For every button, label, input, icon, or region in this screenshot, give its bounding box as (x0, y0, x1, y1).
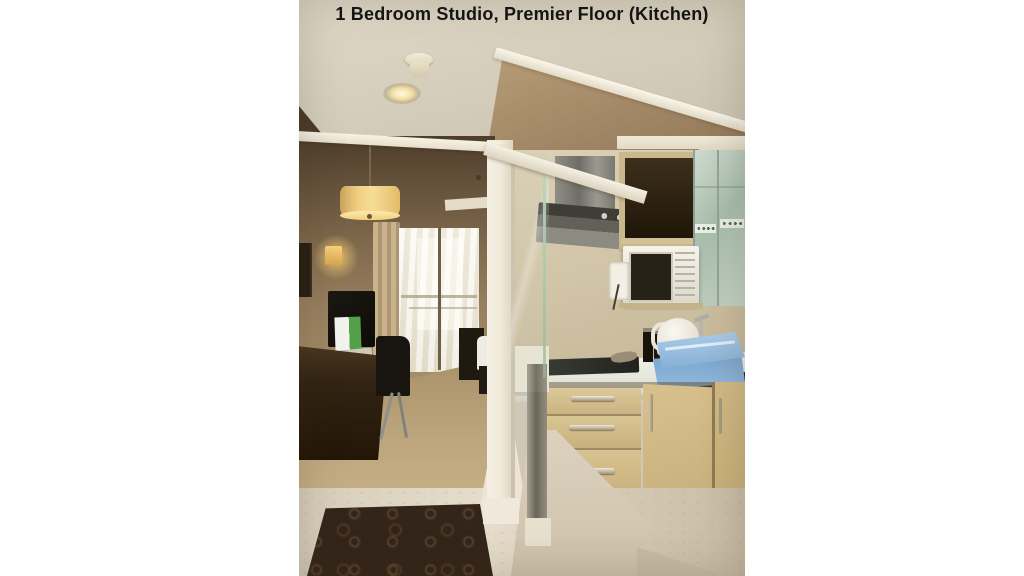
microwave-door (629, 252, 673, 302)
apartment-photo: 1 Bedroom Studio, Premier Floor (Kitchen… (299, 0, 745, 576)
cabinet-panel-line (695, 186, 745, 188)
area-rug (307, 504, 493, 576)
glass-partition-edge (543, 158, 546, 378)
desk-chair (376, 336, 410, 396)
partition-post-base (525, 518, 551, 546)
drawer-handle (571, 396, 615, 401)
cabinet-handle-strip (695, 224, 716, 233)
cabinet-divider (717, 150, 719, 306)
wall-dot (476, 175, 481, 180)
balcony-rail-lower (409, 307, 477, 309)
door-frame (487, 140, 513, 512)
microwave-control-panel (675, 252, 695, 300)
wall-sconce (325, 246, 342, 265)
door-handle (719, 398, 722, 434)
pendant-cord (369, 138, 371, 188)
pendant-finial (367, 214, 372, 219)
door-handle (649, 394, 653, 432)
cabinet-handle-strip (720, 219, 744, 228)
microwave-shelf (619, 303, 703, 308)
door-frame-base (483, 498, 519, 524)
kitchen-drawer (545, 388, 641, 416)
smoke-detector-base (410, 62, 429, 77)
window-mullion (438, 228, 441, 370)
recessed-downlight (383, 83, 421, 104)
picture-frame (299, 243, 312, 297)
desk (299, 346, 387, 460)
power-outlet (609, 262, 629, 300)
photo-caption: 1 Bedroom Studio, Premier Floor (Kitchen… (299, 4, 745, 25)
cabinet-shelf (621, 238, 697, 244)
drawer-handle (569, 425, 615, 430)
